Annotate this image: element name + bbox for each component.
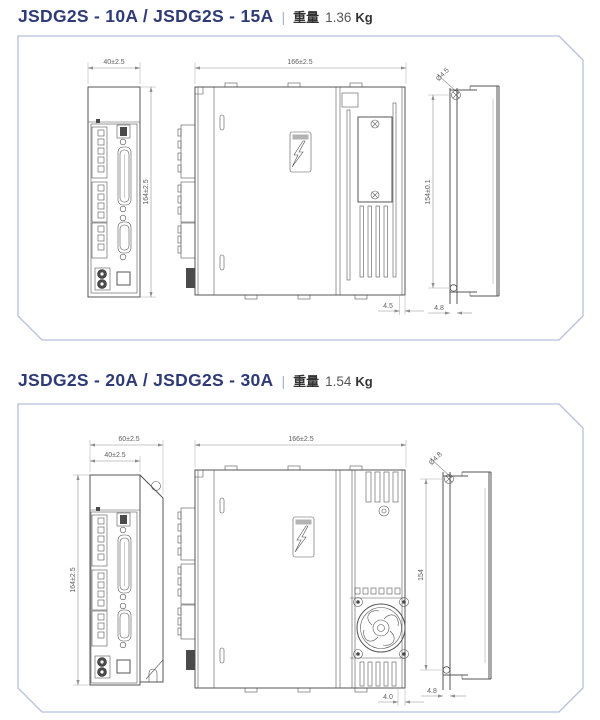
dim-slot-width-2: 4.8 (427, 688, 437, 695)
dim-front-height-2: 164±2.5 (70, 567, 77, 592)
dim-front-width-1: 40±2.5 (103, 59, 124, 66)
weight-value-2: 1.54 (325, 374, 351, 389)
title-separator-2: | (279, 373, 287, 389)
dim-slot-width-1: 4.8 (434, 305, 444, 312)
dim-front-outer-width-2: 60±2.5 (118, 436, 139, 443)
dim-side-width-1: 166±2.5 (287, 59, 312, 66)
dimension-drawing-20a-30a: 60±2.5 40±2.5 164±2.5 (0, 398, 600, 720)
dim-mount-pitch-2: 154 (418, 569, 425, 581)
weight-value-1: 1.36 (325, 10, 351, 25)
model-names-1: JSDG2S - 10A / JSDG2S - 15A (18, 6, 273, 27)
dim-mount-pitch-1: 154±0.1 (425, 179, 432, 204)
dim-front-height-1: 164±2.5 (143, 179, 150, 204)
dimension-drawing-10a-15a: 40±2.5 (0, 34, 600, 346)
title-separator-1: | (279, 9, 287, 25)
datasheet-page: { "colors": { "accent_title": "#2e3b78",… (0, 0, 600, 720)
section-1-title: JSDG2S - 10A / JSDG2S - 15A | 重量 1.36 Kg (18, 6, 373, 27)
dim-side-gap-1: 4.5 (383, 303, 393, 310)
section-2-title: JSDG2S - 20A / JSDG2S - 30A | 重量 1.54 Kg (18, 370, 373, 391)
weight-label-2: 重量 (293, 371, 319, 390)
model-names-2: JSDG2S - 20A / JSDG2S - 30A (18, 370, 273, 391)
dim-side-width-2: 166±2.5 (288, 436, 313, 443)
weight-unit-2: Kg (355, 374, 372, 389)
dim-front-width-2: 40±2.5 (104, 452, 125, 459)
weight-unit-1: Kg (355, 10, 372, 25)
dim-side-gap-2: 4.0 (383, 694, 393, 701)
panel-border-1 (18, 36, 583, 340)
weight-label-1: 重量 (293, 7, 319, 26)
